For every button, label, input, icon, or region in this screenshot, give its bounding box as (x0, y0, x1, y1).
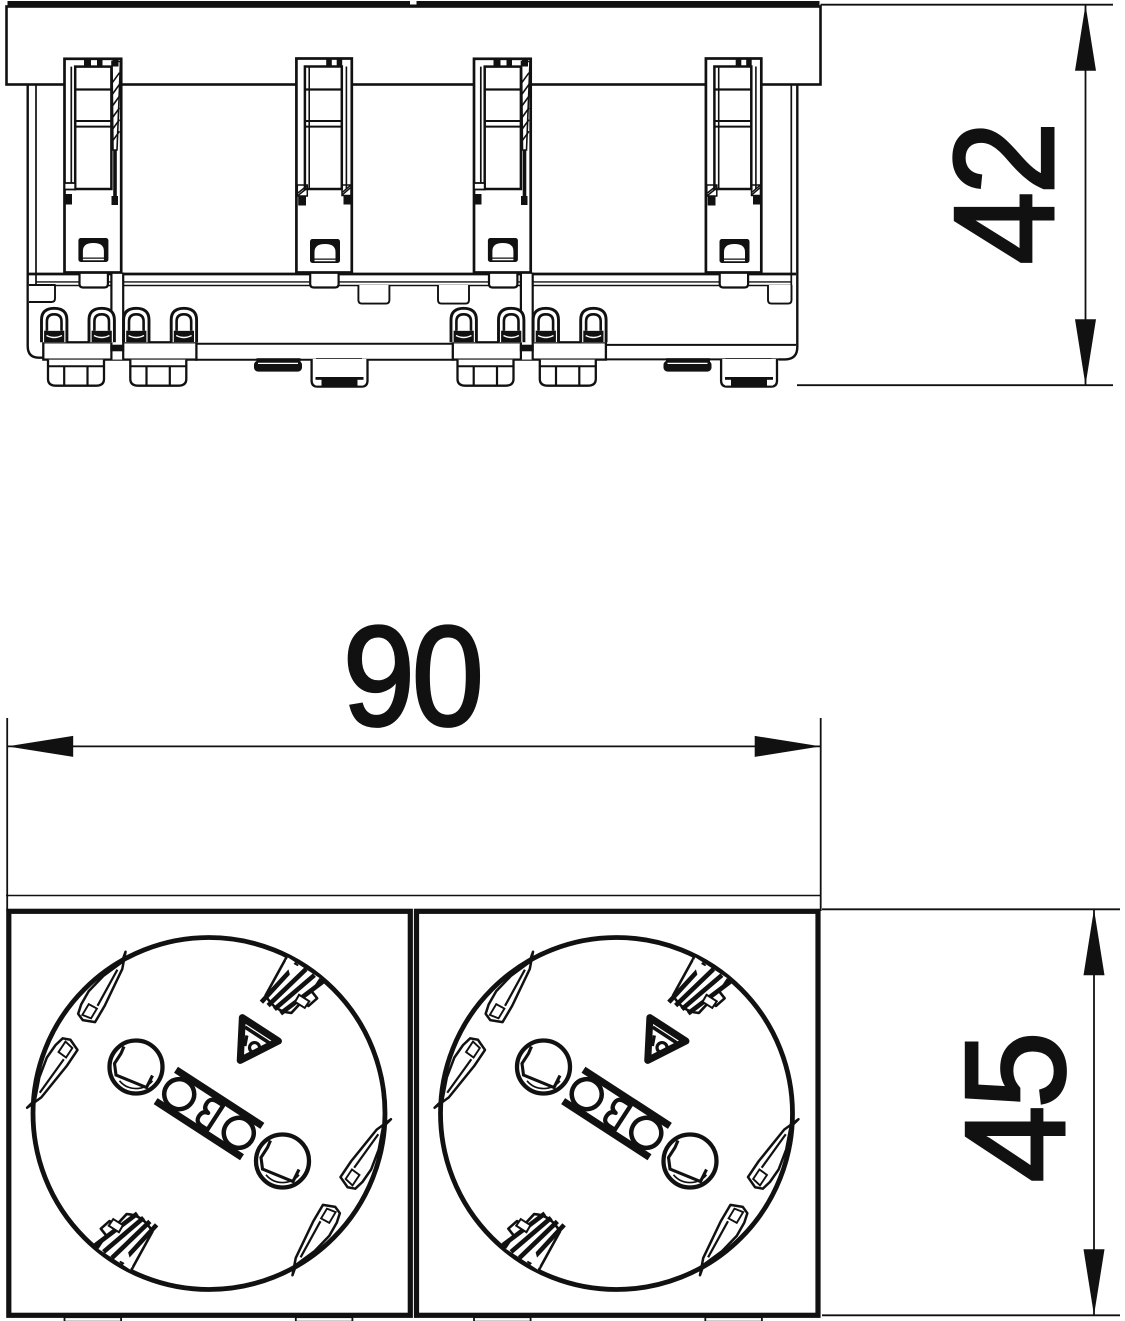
svg-text:42: 42 (925, 125, 1084, 265)
svg-text:90: 90 (343, 597, 481, 756)
svg-text:45: 45 (936, 1035, 1095, 1183)
